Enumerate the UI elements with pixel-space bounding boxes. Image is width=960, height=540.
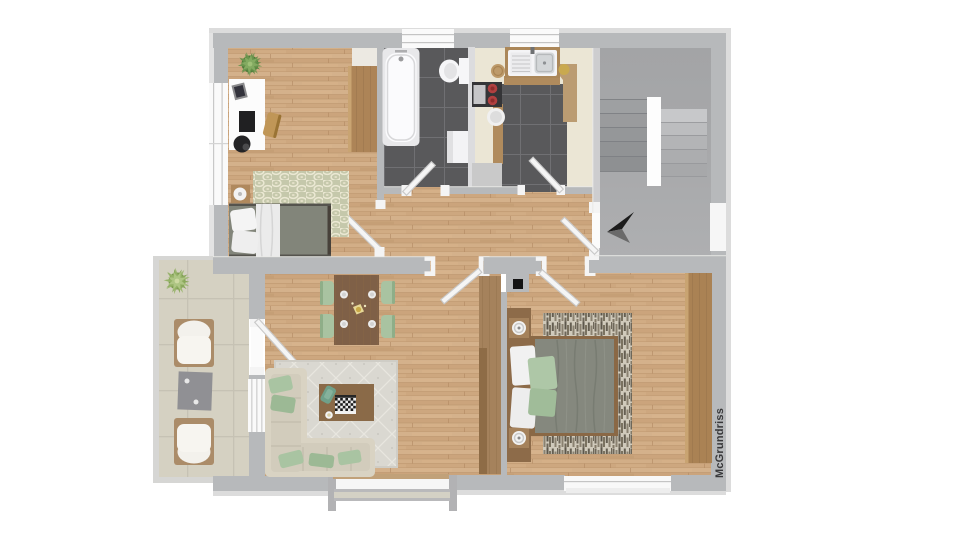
- svg-text:McGrundriss: McGrundriss: [714, 408, 726, 478]
